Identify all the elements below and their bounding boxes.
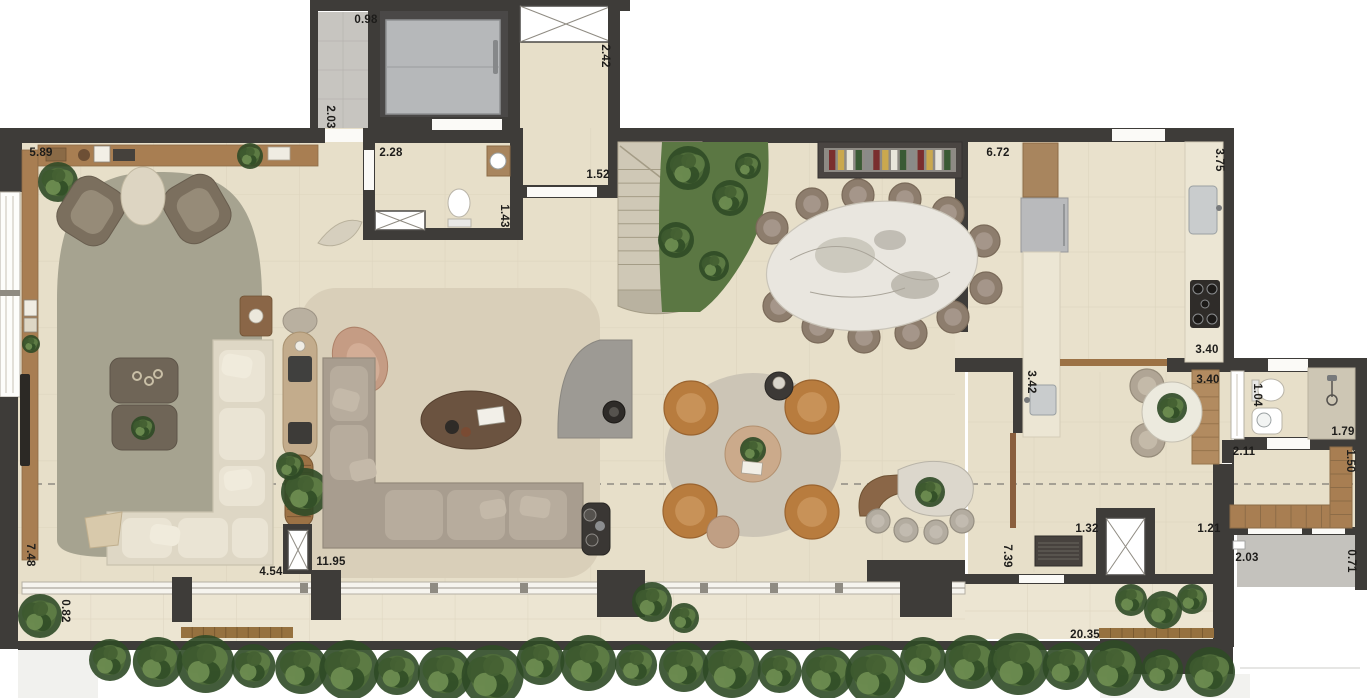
kitchen-fridge [1021,198,1068,252]
door-entry-gap [325,129,363,142]
hedge-bottom [1106,649,1125,668]
hedge-bottom [1149,668,1165,684]
bar-stool [899,523,912,536]
wall-top-left [0,128,325,143]
plant-terrace-palm [26,614,43,631]
hedge-bottom [866,655,886,675]
wine-bottles [900,150,906,170]
end-table-triangle [85,512,122,548]
dimension-label-2.42: 2.42 [599,44,611,67]
elevator-door-gap [432,119,502,130]
console-planter-1 [288,356,312,382]
bath-window-gap [1268,359,1308,371]
hedge-bottom [954,659,974,679]
dimension-label-1.79: 1.79 [1331,426,1354,438]
dimension-label-11.95: 11.95 [316,556,346,568]
marble-patch [874,230,906,250]
hedge-bottom [383,670,400,687]
decor-books [268,147,290,160]
plant-corner [46,180,61,195]
plant-terrace-2 [675,616,686,627]
wine-bottles [829,150,835,170]
bath-door-gap [1267,438,1310,449]
wall-left-upper [0,140,22,192]
plant-shelf [242,155,252,165]
dimension-label-2.03: 2.03 [1235,552,1258,564]
shower-head [1327,375,1337,381]
facade-mullion [700,583,708,593]
burner-center [1201,300,1209,308]
dining-chair [975,232,993,250]
decor-cup [586,534,598,546]
hedge-bottom [1059,650,1075,666]
hedge-bottom [197,645,217,665]
meter-box [1233,541,1245,549]
hedge-bottom [766,669,783,686]
hedge-bottom [97,658,113,674]
kitchen-sink [1189,186,1217,234]
hedge-bottom [526,658,544,676]
kitchen-cabinet-wood [1023,143,1058,197]
hedge-bottom [1202,655,1219,672]
plant-bar-table [921,490,932,501]
hedge-bottom [188,661,210,683]
garden-plant [709,256,719,266]
wall-terrace-right [1213,464,1234,639]
hedge-bottom [963,644,981,662]
sofa-cream-cushion [178,518,228,558]
dining-chair [803,195,821,213]
stove-fireplace-top [609,407,619,417]
wall-kitchen-top [955,128,1234,142]
dimension-label-7.48: 7.48 [24,543,36,567]
hedge-bottom [819,656,837,674]
plant-terrace-1 [646,589,660,603]
plant-console [28,338,34,344]
hedge-bottom [723,650,743,670]
wine-bottles [838,150,844,170]
wine-bottles [909,150,915,170]
powder-toilet-tank [448,219,471,227]
dimension-label-3.40: 3.40 [1196,374,1219,386]
decor-plate [249,309,263,323]
plant-terrace-3 [1126,589,1137,600]
dimension-label-7.39: 7.39 [1001,544,1013,567]
garden-plant [719,196,733,210]
hedge-bottom [428,671,448,691]
bar-stool [929,525,942,538]
decor-vase [295,341,305,351]
marble-patch [891,271,939,299]
hedge-bottom [247,651,262,666]
garden-plant [705,264,716,275]
garden-plant [740,165,750,175]
plant-card-table [749,441,758,450]
wine-bottles [918,150,924,170]
side-table-card-tan [707,516,739,548]
decor-cup [773,377,785,389]
facade-post-1 [172,577,192,622]
facade-mullion [430,583,438,593]
dimension-label-1.32: 1.32 [1075,523,1098,535]
hedge-bottom [340,650,360,670]
armchair-caramel [675,496,705,526]
plant-corner [52,169,66,183]
dining-chair [763,219,781,237]
dimension-label-3.40: 3.40 [1195,344,1218,356]
wine-bottles [891,150,897,170]
dimension-label-3.42: 3.42 [1025,370,1037,393]
powder-toilet-bowl [448,189,470,217]
coffee-table-1 [110,358,178,403]
decor-tray [113,149,135,161]
burner [1207,284,1217,294]
hedge-bottom [714,666,736,688]
burner [1193,314,1203,324]
garden-plant [665,238,679,252]
wall-elevator-right [508,11,520,117]
burner [1193,284,1203,294]
decor-art-2 [24,318,37,332]
hedge-bottom [1009,643,1030,664]
bath-sink-basin [1257,413,1271,427]
hedge-bottom [1000,661,1023,684]
plant-nook-table [1167,398,1177,408]
burner [1207,314,1217,324]
decor-book [477,406,505,425]
dimension-label-1.52: 1.52 [586,169,609,181]
wall-corridor [1013,362,1023,433]
hedge-bottom [909,658,926,675]
plant-coffee-table [139,420,147,428]
decor-frame [94,146,110,162]
plant-terrace-5 [1183,597,1194,608]
hedge-bottom [623,663,639,679]
bar-stool [871,514,884,527]
hedge-bottom [1052,663,1070,681]
hedge-bottom [1097,665,1118,686]
hedge-bottom [150,645,167,662]
dimension-label-20.35: 20.35 [1070,629,1100,641]
wine-bottles [847,150,853,170]
hedge-bottom [331,667,354,690]
decor-bowl-small [461,427,471,437]
facade-mullion [300,583,308,593]
plant-bar-table [925,482,935,492]
dimension-label-1.43: 1.43 [498,204,510,227]
hedge-bottom [142,659,161,678]
plant-coffee-table [136,427,145,436]
dimension-label-1.04: 1.04 [1251,383,1263,407]
door-powder-gap [364,150,374,190]
hedge-bottom [285,665,305,685]
hedge-bottom [293,651,311,669]
dimension-label-6.72: 6.72 [986,147,1009,159]
decor-bowl-dark [445,420,459,434]
wall-dining-top [620,128,962,143]
dimension-label-0.98: 0.98 [354,14,378,26]
hedge-bottom [630,651,644,665]
floor-plan: 0.982.032.425.892.281.521.436.723.753.40… [0,0,1369,698]
kitchen-window-gap [1112,129,1165,141]
garden-plant [744,157,753,166]
kitchen-faucet [1216,205,1222,211]
stool-entry [283,308,317,334]
facade-mullion [835,583,843,593]
plant-console [25,343,32,350]
dimension-label-2.03: 2.03 [324,105,336,128]
hedge-bottom [571,660,592,681]
wall-top-powder [363,128,523,143]
elevator-door-handle [493,40,498,74]
decor-cup [595,521,605,531]
facade-post-3 [900,572,952,617]
utility-faucet [1024,397,1030,403]
shaft-wall-2 [311,570,341,620]
plant-terrace-5 [1187,589,1197,599]
plant-terrace-4 [1157,597,1170,610]
sofa-cream-cushion [232,518,268,558]
hedge-bottom [669,664,688,683]
armchair-caramel [676,393,706,423]
dimension-label-0.82: 0.82 [59,599,71,622]
dining-chair [977,279,995,297]
dimension-label-0.71: 0.71 [1345,549,1357,573]
hedge-bottom [390,657,406,673]
wine-bottles [864,150,870,170]
hedge-bottom [676,650,693,667]
dimension-label-3.75: 3.75 [1213,148,1225,172]
sofa-greige-cushion [385,490,443,540]
plant-terrace-palm [33,601,48,616]
plant-divider-1 [290,489,308,507]
plant-terrace-2 [679,608,689,618]
dining-chair [902,324,920,342]
console-planter-2 [288,422,312,444]
dimension-label-5.89: 5.89 [29,147,52,159]
plant-terrace-4 [1151,608,1165,622]
wood-partition [1010,433,1016,528]
hedge-bottom [533,645,549,661]
dimension-label-2.11: 2.11 [1233,446,1256,458]
hedge-bottom [104,646,118,660]
marble-patch [815,237,875,273]
hedge-bottom [240,664,256,681]
hedge-bottom [483,655,504,676]
decor-cup [584,509,596,521]
hedge-bottom [773,656,788,671]
wall-hall-elevator [368,11,380,130]
sofa-pillow [519,495,551,519]
wine-bottles [856,150,862,170]
dining-chair [849,186,867,204]
plant-shelf [246,147,255,156]
sofa-cream-cushion [219,408,265,460]
tv-panel [20,374,30,466]
console-left-wood [22,150,38,560]
garden-plant [670,228,682,240]
wine-bottles [935,150,941,170]
wall-kitchen-bottom-left [955,358,1023,372]
plant-nook-table [1163,406,1174,417]
wine-bottles [944,150,950,170]
wine-bottles [926,150,932,170]
side-table-oval [121,167,165,225]
floor-plan-page: 0.982.032.425.892.281.521.436.723.753.40… [0,0,1369,698]
kitchen-counter-right [1185,142,1223,362]
hedge-bottom [916,645,932,661]
garden-plant [674,166,691,183]
hedge-bottom [1156,656,1170,670]
wall-powder-right [510,143,523,240]
plant-terrace-1 [640,600,655,615]
bar-stool [955,514,968,527]
garden-plant [724,186,736,198]
plant-card-table [745,449,755,459]
wall-elevator-left [310,0,318,128]
wall-left-lower [0,397,18,649]
hedge-bottom [580,644,599,663]
plant-divider-2 [281,465,292,476]
decor-cards [741,461,762,475]
window-left-mullion [0,290,20,296]
wall-service-terrace [965,574,1213,584]
garden-plant [681,153,696,168]
dining-chair [944,308,962,326]
armchair-caramel [797,497,827,527]
hedge-bottom [1195,669,1214,688]
powder-sink-basin [490,153,506,169]
plant-divider-1 [298,476,314,492]
plant-divider-2 [286,457,295,466]
armchair-caramel [797,392,827,422]
hedge-bottom [857,672,880,695]
decor-bowl [78,149,90,161]
coffee-table-round [421,391,521,449]
plant-terrace-3 [1121,598,1133,610]
dimension-label-4.54: 4.54 [259,566,283,578]
hedge-bottom [811,670,831,690]
dimension-label-1.21: 1.21 [1197,523,1221,535]
wine-bottles [882,150,888,170]
door-hall-gap [527,187,597,197]
wine-bottles [873,150,879,170]
dimension-label-2.28: 2.28 [379,147,403,159]
dimension-label-1.50: 1.50 [1344,449,1356,472]
decor-art-1 [24,300,37,316]
threshold-wood [1060,359,1167,366]
facade-mullion [770,583,778,593]
hedge-bottom [436,656,454,674]
sidewalk-left [18,649,98,698]
hedge-bottom [474,673,497,696]
terrace-door-gap [1019,575,1064,583]
facade-mullion [520,583,528,593]
